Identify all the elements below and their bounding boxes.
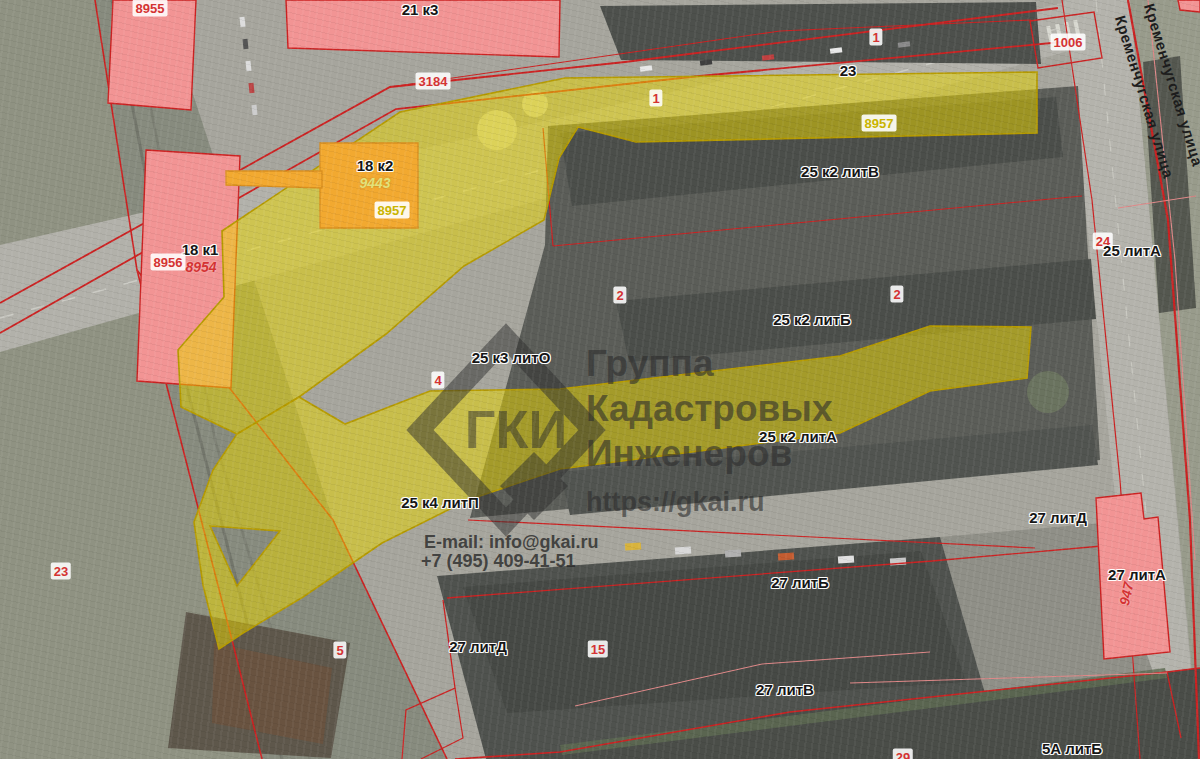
parcel-number-label: 15 bbox=[588, 641, 608, 658]
building-label: 27 литД bbox=[1029, 510, 1087, 527]
highlighted-parcel-number-label: 8957 bbox=[862, 115, 897, 132]
cadastral-map-canvas[interactable]: ГКИ 895521 к3318412311006895718 к2944389… bbox=[0, 0, 1200, 759]
building-label: 27 литБ bbox=[771, 575, 829, 592]
cadastral-italic-label: 8954 bbox=[185, 260, 216, 275]
building-label: 27 литД bbox=[449, 639, 507, 656]
parcel-number-label: 8955 bbox=[133, 0, 168, 17]
building-label: 5А литБ bbox=[1042, 741, 1102, 758]
parcel-number-label: 29 bbox=[893, 749, 913, 759]
parcel-number-label: 8956 bbox=[151, 254, 186, 271]
highlighted-parcel-number-label: 8957 bbox=[375, 202, 410, 219]
map-labels-layer: 895521 к3318412311006895718 к29443895725… bbox=[0, 0, 1200, 759]
cadastral-italic-label: 947 bbox=[1117, 581, 1137, 607]
building-label: 25 к2 литА bbox=[759, 429, 837, 446]
building-label: 18 к2 bbox=[357, 158, 394, 175]
building-label: 27 литВ bbox=[756, 682, 814, 699]
parcel-number-label: 4 bbox=[431, 372, 444, 389]
parcel-number-label: 2 bbox=[613, 287, 626, 304]
building-label: 25 литА bbox=[1103, 243, 1161, 260]
parcel-number-label: 2 bbox=[890, 286, 903, 303]
parcel-number-label: 3184 bbox=[416, 73, 451, 90]
building-label: 25 к2 литБ bbox=[773, 312, 851, 329]
parcel-number-label: 1006 bbox=[1051, 34, 1086, 51]
building-label: 21 к3 bbox=[402, 2, 439, 19]
building-label: 27 литА bbox=[1108, 567, 1166, 584]
cadastral-italic-label: 9443 bbox=[359, 176, 390, 191]
building-label: 18 к1 bbox=[182, 242, 219, 259]
building-label: 23 bbox=[840, 63, 857, 80]
parcel-number-label: 1 bbox=[649, 90, 662, 107]
parcel-number-label: 1 bbox=[869, 29, 882, 46]
building-label: 25 к2 литВ bbox=[801, 164, 879, 181]
building-label: 25 к3 литО bbox=[472, 350, 551, 367]
parcel-number-label: 23 bbox=[51, 563, 71, 580]
building-label: 25 к4 литП bbox=[401, 495, 479, 512]
parcel-number-label: 5 bbox=[333, 642, 346, 659]
